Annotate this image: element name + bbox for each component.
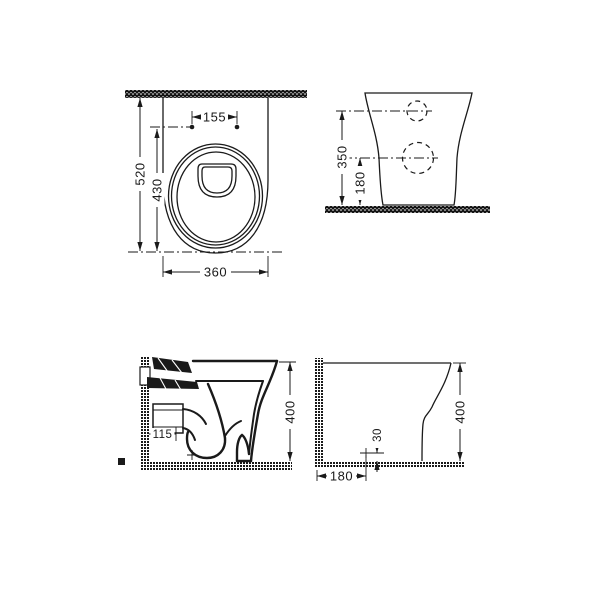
dim-outlet-above-floor-label: 30 (372, 428, 384, 442)
dim-total-depth-label: 520 (133, 162, 148, 185)
profile-wall-hatch (315, 358, 323, 466)
reference-mark-square (118, 458, 125, 465)
section-floor-hatch (140, 462, 292, 470)
dim-section-height-label: 400 (283, 400, 298, 423)
dim-inlet-height-label: 350 (335, 145, 350, 168)
technical-drawing-toilet: 155 520 430 360 350 180 (0, 0, 600, 600)
dim-width-label: 360 (204, 265, 227, 280)
dim-outlet-from-wall-label: 180 (330, 469, 353, 484)
dim-outlet-offset-label: 115 (153, 429, 173, 441)
rear-floor-hatch (325, 206, 490, 213)
dim-hole-spacing-label: 155 (203, 110, 226, 125)
dim-bowl-depth-label: 430 (150, 178, 165, 201)
profile-floor-hatch (315, 461, 465, 468)
fixing-hole-right (235, 125, 240, 130)
dim-outlet-height-label: 180 (353, 171, 368, 194)
plan-wall-hatch (125, 90, 307, 98)
drawing-canvas: 155 520 430 360 350 180 (0, 0, 600, 600)
dim-profile-height-label: 400 (453, 400, 468, 423)
fixing-hole-left (190, 125, 195, 130)
